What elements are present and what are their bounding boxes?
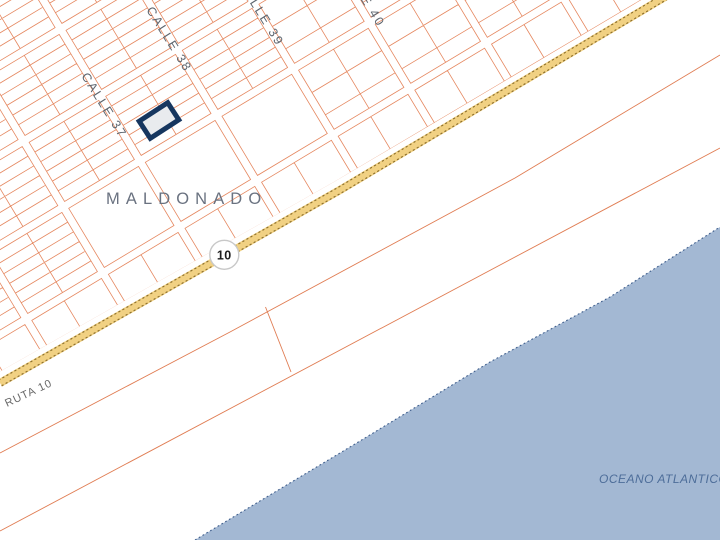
svg-text:OCEANO ATLANTICO: OCEANO ATLANTICO [599, 472, 720, 486]
svg-text:10: 10 [217, 248, 232, 262]
svg-text:MALDONADO: MALDONADO [106, 190, 267, 208]
